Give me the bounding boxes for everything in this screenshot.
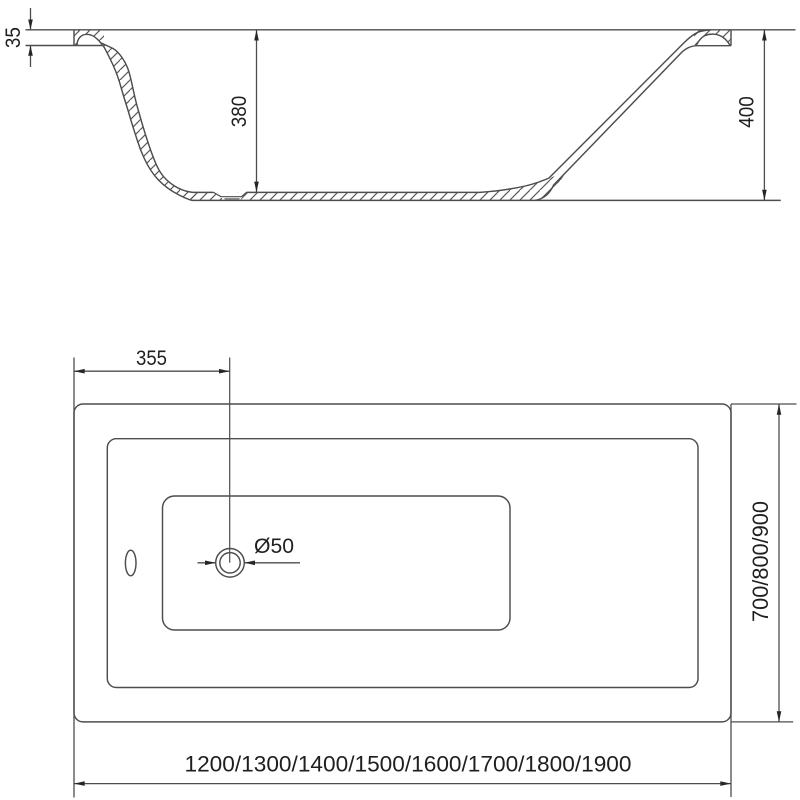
svg-text:355: 355 [136,347,167,370]
svg-text:1200/1300/1400/1500/1600/1700/: 1200/1300/1400/1500/1600/1700/1800/1900 [185,752,632,777]
svg-text:400: 400 [736,96,759,128]
svg-text:380: 380 [228,96,251,128]
svg-text:35: 35 [2,27,25,48]
svg-text:700/800/900: 700/800/900 [748,501,773,622]
svg-text:Ø50: Ø50 [254,535,294,558]
